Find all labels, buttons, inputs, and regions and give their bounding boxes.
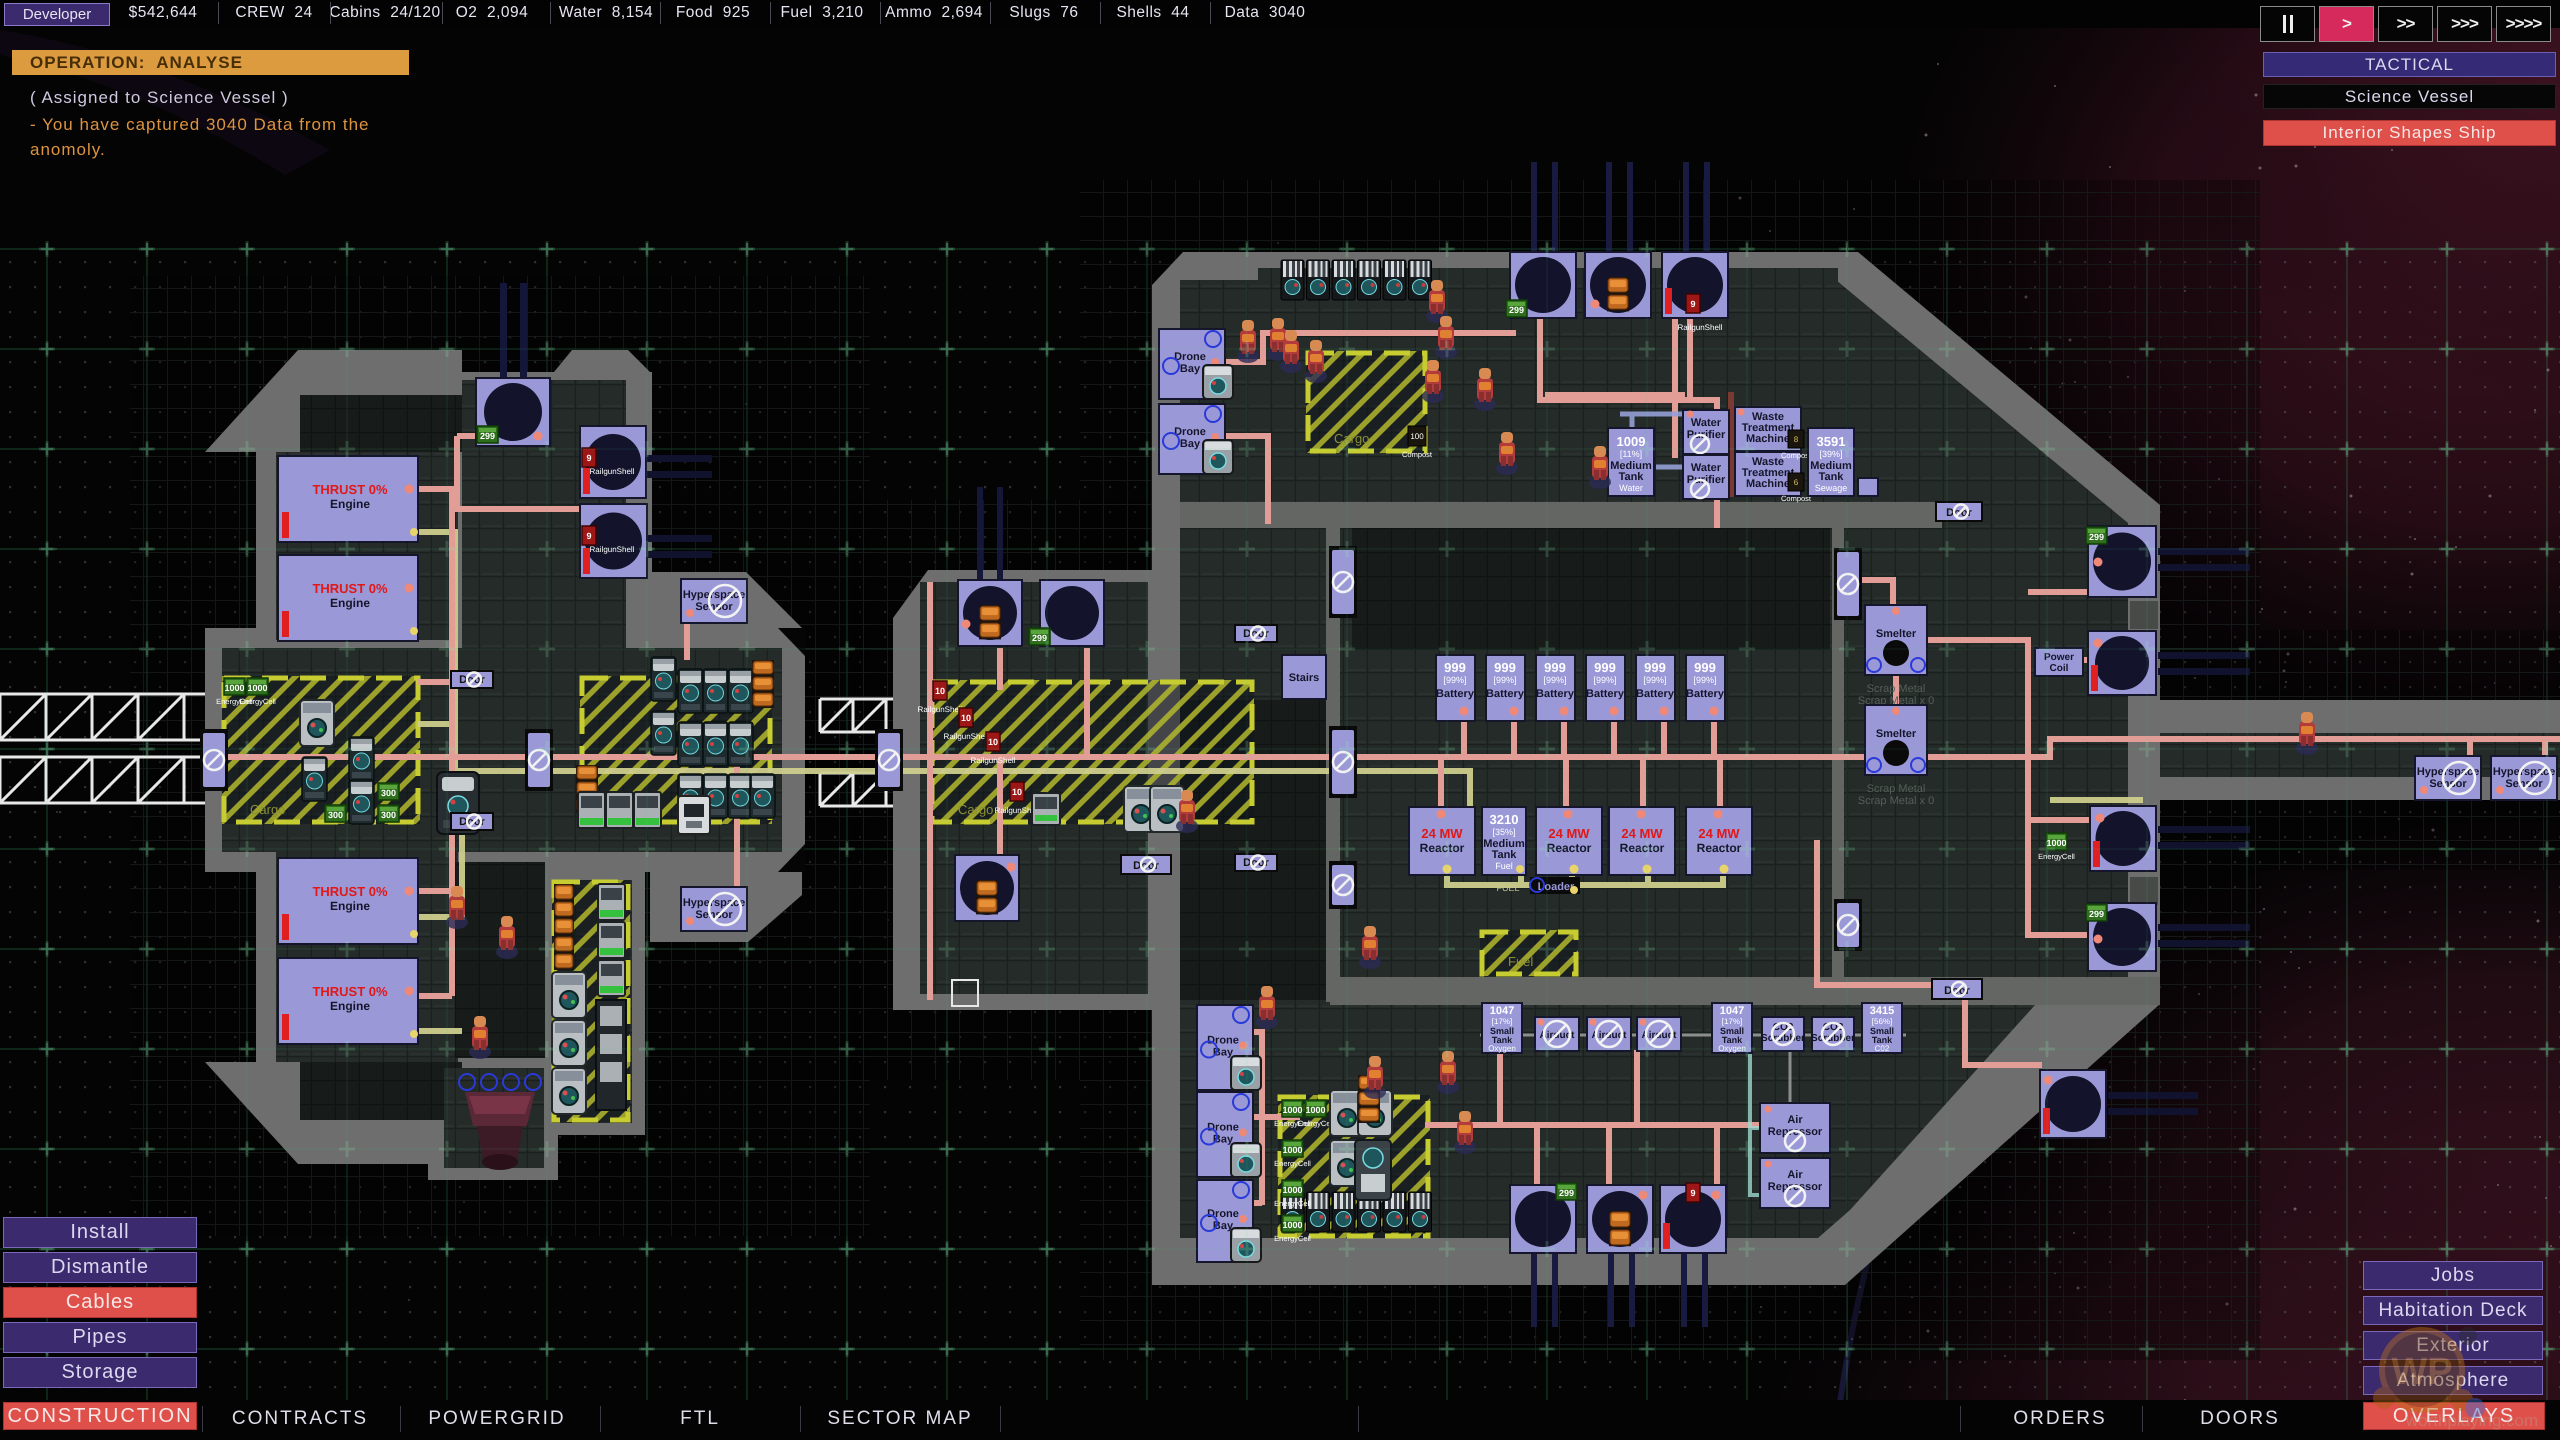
svg-text:Smelter: Smelter bbox=[1876, 728, 1917, 740]
svg-text:6: 6 bbox=[1794, 478, 1799, 487]
svg-text:1000: 1000 bbox=[1282, 1105, 1302, 1115]
svg-text:Scrap Metal: Scrap Metal bbox=[1867, 683, 1926, 695]
svg-text:24 MW: 24 MW bbox=[1698, 826, 1740, 841]
svg-text:Engine: Engine bbox=[330, 999, 370, 1013]
svg-text:Battery: Battery bbox=[1636, 688, 1675, 700]
svg-text:Battery: Battery bbox=[1586, 688, 1625, 700]
svg-text:Compost: Compost bbox=[1402, 450, 1433, 459]
svg-text:[56%]: [56%] bbox=[1872, 1017, 1892, 1026]
svg-text:300: 300 bbox=[381, 788, 396, 798]
svg-text:Drone: Drone bbox=[1174, 351, 1206, 363]
svg-text:Cargo: Cargo bbox=[958, 802, 993, 817]
svg-text:3210: 3210 bbox=[1490, 812, 1519, 827]
svg-text:RailgunShell: RailgunShell bbox=[971, 756, 1016, 765]
svg-text:299: 299 bbox=[480, 431, 495, 441]
svg-text:RailgunShell: RailgunShell bbox=[918, 705, 963, 714]
svg-text:10: 10 bbox=[1012, 787, 1022, 797]
svg-text:EnergyCell: EnergyCell bbox=[239, 697, 276, 706]
svg-text:RailgunShell: RailgunShell bbox=[944, 732, 989, 741]
svg-text:Scrap Metal: Scrap Metal bbox=[1867, 783, 1926, 795]
svg-text:THRUST 0%: THRUST 0% bbox=[312, 984, 388, 999]
svg-text:EnergyCell: EnergyCell bbox=[1274, 1159, 1311, 1168]
svg-text:9: 9 bbox=[586, 453, 591, 463]
svg-text:24 MW: 24 MW bbox=[1621, 826, 1663, 841]
svg-text:Engine: Engine bbox=[330, 497, 370, 511]
svg-text:Tank: Tank bbox=[1819, 471, 1845, 483]
svg-text:Cargo: Cargo bbox=[250, 802, 285, 817]
svg-text:EnergyCell: EnergyCell bbox=[1274, 1234, 1311, 1243]
svg-text:1000: 1000 bbox=[1282, 1145, 1302, 1155]
svg-text:1000: 1000 bbox=[2046, 838, 2066, 848]
svg-text:Battery: Battery bbox=[1436, 688, 1475, 700]
svg-text:Battery: Battery bbox=[1536, 688, 1575, 700]
svg-text:Machine: Machine bbox=[1746, 433, 1790, 445]
svg-text:Drone: Drone bbox=[1207, 1122, 1239, 1134]
svg-text:THRUST 0%: THRUST 0% bbox=[312, 884, 388, 899]
svg-text:Fuel: Fuel bbox=[1508, 954, 1533, 969]
svg-text:Battery: Battery bbox=[1686, 688, 1725, 700]
svg-text:10: 10 bbox=[961, 713, 971, 723]
svg-text:Engine: Engine bbox=[330, 596, 370, 610]
svg-text:9: 9 bbox=[1690, 1188, 1695, 1198]
svg-text:24 MW: 24 MW bbox=[1548, 826, 1590, 841]
svg-text:[99%]: [99%] bbox=[1593, 675, 1616, 685]
svg-text:Sewage: Sewage bbox=[1815, 483, 1848, 493]
svg-text:1047: 1047 bbox=[1720, 1005, 1744, 1017]
svg-text:Drone: Drone bbox=[1207, 1035, 1239, 1047]
svg-text:EnergyCell: EnergyCell bbox=[1297, 1119, 1334, 1128]
svg-text:Bay: Bay bbox=[1180, 363, 1201, 375]
svg-text:Water: Water bbox=[1691, 462, 1722, 474]
svg-text:299: 299 bbox=[1032, 633, 1047, 643]
svg-text:Air: Air bbox=[1787, 1169, 1803, 1181]
svg-text:Smelter: Smelter bbox=[1876, 628, 1917, 640]
svg-text:10: 10 bbox=[988, 737, 998, 747]
svg-text:FUEL: FUEL bbox=[1496, 883, 1519, 893]
svg-text:Battery: Battery bbox=[1486, 688, 1525, 700]
svg-text:1000: 1000 bbox=[1305, 1105, 1325, 1115]
svg-text:RailgunShell: RailgunShell bbox=[1678, 323, 1723, 332]
svg-text:3591: 3591 bbox=[1817, 434, 1846, 449]
svg-text:9: 9 bbox=[586, 531, 591, 541]
svg-text:1047: 1047 bbox=[1490, 1005, 1514, 1017]
svg-text:Fuel: Fuel bbox=[1495, 861, 1513, 871]
svg-text:1000: 1000 bbox=[224, 683, 244, 693]
svg-text:24 MW: 24 MW bbox=[1421, 826, 1463, 841]
svg-text:9: 9 bbox=[1690, 299, 1695, 309]
svg-text:Water: Water bbox=[1619, 483, 1643, 493]
svg-text:999: 999 bbox=[1494, 660, 1516, 675]
svg-text:[99%]: [99%] bbox=[1493, 675, 1516, 685]
svg-text:Tank: Tank bbox=[1619, 471, 1645, 483]
svg-text:Power: Power bbox=[2044, 652, 2074, 663]
svg-text:Reactor: Reactor bbox=[1697, 841, 1742, 855]
svg-text:299: 299 bbox=[2089, 532, 2104, 542]
svg-text:Tank: Tank bbox=[1492, 849, 1518, 861]
svg-text:Bay: Bay bbox=[1180, 438, 1201, 450]
svg-text:Drone: Drone bbox=[1174, 426, 1206, 438]
svg-text:[35%]: [35%] bbox=[1492, 827, 1515, 837]
svg-text:Water: Water bbox=[1691, 417, 1722, 429]
svg-text:WP: WP bbox=[2391, 1351, 2452, 1393]
svg-text:Scrap Metal x 0: Scrap Metal x 0 bbox=[1858, 795, 1934, 807]
svg-text:Drone: Drone bbox=[1207, 1208, 1239, 1220]
svg-text:[99%]: [99%] bbox=[1693, 675, 1716, 685]
svg-text:1009: 1009 bbox=[1617, 434, 1646, 449]
svg-text:8: 8 bbox=[1794, 435, 1799, 444]
svg-text:worthplaying.com: worthplaying.com bbox=[2405, 1411, 2538, 1430]
svg-text:300: 300 bbox=[381, 810, 396, 820]
svg-text:299: 299 bbox=[1509, 305, 1524, 315]
svg-text:EnergyCell: EnergyCell bbox=[2038, 852, 2075, 861]
svg-text:[17%]: [17%] bbox=[1492, 1017, 1512, 1026]
svg-text:999: 999 bbox=[1694, 660, 1716, 675]
svg-text:1000: 1000 bbox=[247, 683, 267, 693]
svg-text:[11%]: [11%] bbox=[1620, 449, 1642, 459]
svg-text:Air: Air bbox=[1787, 1114, 1803, 1126]
svg-text:100: 100 bbox=[1410, 432, 1424, 441]
svg-text:THRUST 0%: THRUST 0% bbox=[312, 482, 388, 497]
svg-text:300: 300 bbox=[328, 810, 343, 820]
svg-text:299: 299 bbox=[1559, 1188, 1574, 1198]
svg-text:1000: 1000 bbox=[1282, 1185, 1302, 1195]
svg-text:Coil: Coil bbox=[2050, 663, 2069, 674]
svg-text:[17%]: [17%] bbox=[1722, 1017, 1742, 1026]
svg-text:EnergyCell: EnergyCell bbox=[1274, 1199, 1311, 1208]
svg-text:1000: 1000 bbox=[1282, 1220, 1302, 1230]
svg-text:THRUST 0%: THRUST 0% bbox=[312, 581, 388, 596]
svg-text:10: 10 bbox=[935, 686, 945, 696]
svg-text:Cargo: Cargo bbox=[1334, 431, 1369, 446]
svg-text:Stairs: Stairs bbox=[1289, 672, 1320, 684]
svg-text:299: 299 bbox=[2089, 909, 2104, 919]
svg-text:Engine: Engine bbox=[330, 899, 370, 913]
svg-text:3415: 3415 bbox=[1870, 1005, 1894, 1017]
svg-text:Machine: Machine bbox=[1746, 478, 1790, 490]
svg-text:999: 999 bbox=[1594, 660, 1616, 675]
svg-text:RailgunShell: RailgunShell bbox=[590, 467, 635, 476]
